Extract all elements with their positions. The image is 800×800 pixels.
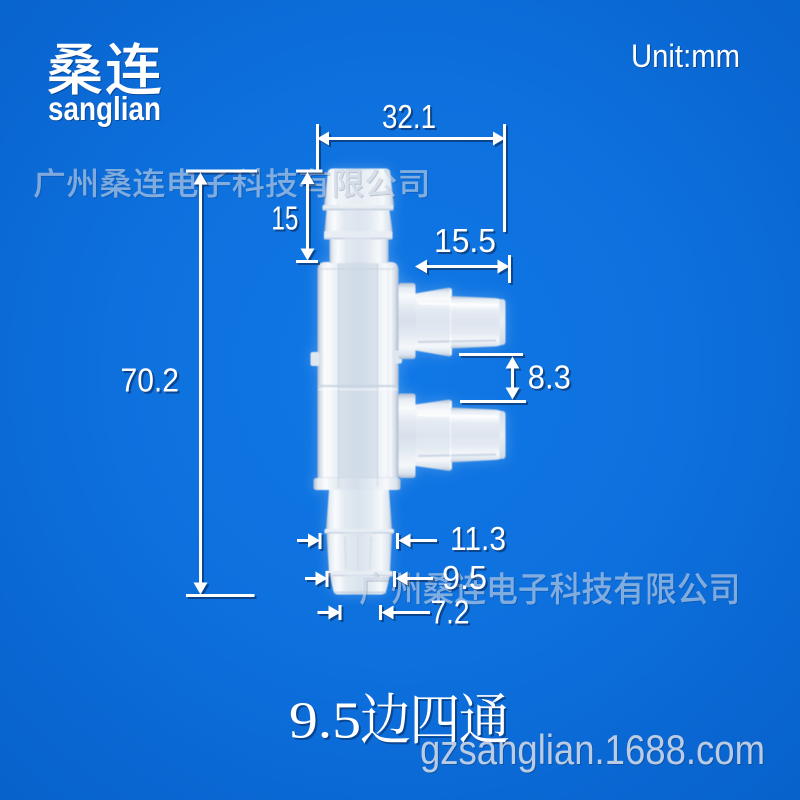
svg-text:7.2: 7.2 — [431, 594, 470, 631]
svg-text:11.3: 11.3 — [450, 520, 506, 557]
svg-text:15.5: 15.5 — [434, 222, 496, 259]
svg-text:9.5: 9.5 — [442, 559, 487, 596]
svg-text:sanglian: sanglian — [48, 90, 161, 127]
svg-text:15: 15 — [271, 200, 298, 237]
svg-text:70.2: 70.2 — [121, 362, 180, 399]
svg-text:8.3: 8.3 — [528, 359, 571, 396]
svg-text:9.5: 9.5 — [289, 693, 361, 750]
svg-text:Unit:mm: Unit:mm — [631, 38, 740, 74]
svg-text:gzsanglian.1688.com: gzsanglian.1688.com — [420, 726, 765, 773]
svg-text:32.1: 32.1 — [382, 98, 436, 135]
